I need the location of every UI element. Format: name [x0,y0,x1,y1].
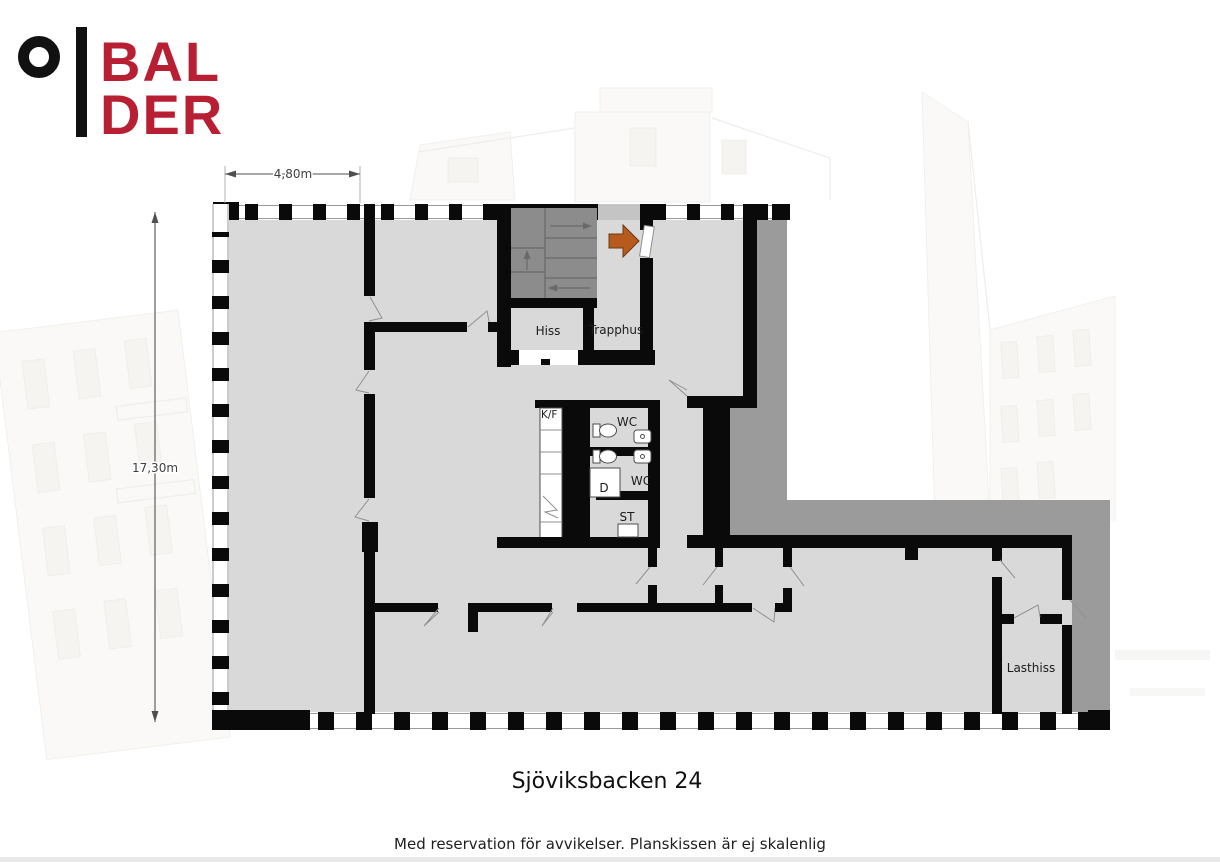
wall-corner [1088,710,1110,730]
room-label-kf: K/F [541,409,557,421]
wall [743,204,757,408]
wall [783,536,792,567]
sink-icon [634,450,651,463]
wall-corner [212,710,310,730]
window-dashes-bottom [310,712,1088,730]
wall [992,535,1002,561]
wall [648,585,657,607]
room-label-wc-bottom: WC [631,474,651,488]
adjacent-strip-mid [730,400,787,536]
dimension-height-label: 17,30m [132,461,178,475]
wall [497,350,519,365]
adjacent-band-horizontal [787,500,1110,536]
wall-corner [772,204,790,220]
wall [364,322,375,370]
sink-icon [634,430,651,443]
wall [783,588,792,607]
wall [497,204,511,367]
floorplan-svg: BAL DER [0,0,1220,862]
wall [652,603,752,612]
watermark-streak [1130,688,1205,696]
cleaning-sink [618,524,638,537]
watermark-building-left [0,310,230,759]
wall [687,535,1072,548]
wall [715,548,723,567]
page-title: Sjöviksbacken 24 [512,769,703,794]
wall [562,408,590,548]
wall [992,577,1002,714]
watermark-building-right [922,92,1115,520]
window-dashes-left [212,232,229,710]
wall [375,603,438,612]
wall [364,394,375,498]
wall-stub [905,546,918,560]
watermark-streak [1115,650,1210,660]
wall [1062,535,1072,600]
wall [715,585,723,607]
room-label-shower: D [599,481,608,495]
disclaimer-text: Med reservation för avvikelser. Planskis… [394,835,826,853]
wall [1002,614,1014,624]
kitchen-cabinet-strip [540,408,562,538]
page-bottom-edge [0,857,1220,862]
wall-glazed-trapphus [598,204,642,220]
wall [648,548,657,567]
wall [640,258,653,353]
logo-ring-icon [24,42,55,73]
wall [535,400,660,408]
floorplan-page: BAL DER [0,0,1220,862]
wall [468,603,552,612]
room-label-storage: ST [620,510,636,524]
room-label-wc-top: WC [617,415,637,429]
wall [541,359,550,365]
wall [364,204,375,296]
wall [375,322,467,332]
wall-stub [468,612,478,632]
balder-logo: BAL DER [24,27,225,146]
wall-pillar [362,522,378,552]
dimension-width: 4,80m [225,166,360,203]
watermark-rooftops [410,88,830,202]
wall [364,552,375,714]
wall [497,537,660,548]
wall [687,396,757,408]
dimension-width-label: 4,80m [274,167,312,181]
wall [1040,614,1062,624]
brand-line2: DER [100,83,224,146]
room-label-hiss: Hiss [536,324,561,338]
room-label-trapphus: Trapphus [588,323,644,337]
wall [488,322,507,332]
wall [703,408,730,538]
wall [1062,625,1072,714]
toilet-icon [593,450,617,463]
logo-bar-icon [76,27,87,137]
room-label-lasthiss: Lasthiss [1007,661,1055,675]
toilet-icon [593,424,617,437]
wall [577,603,652,612]
